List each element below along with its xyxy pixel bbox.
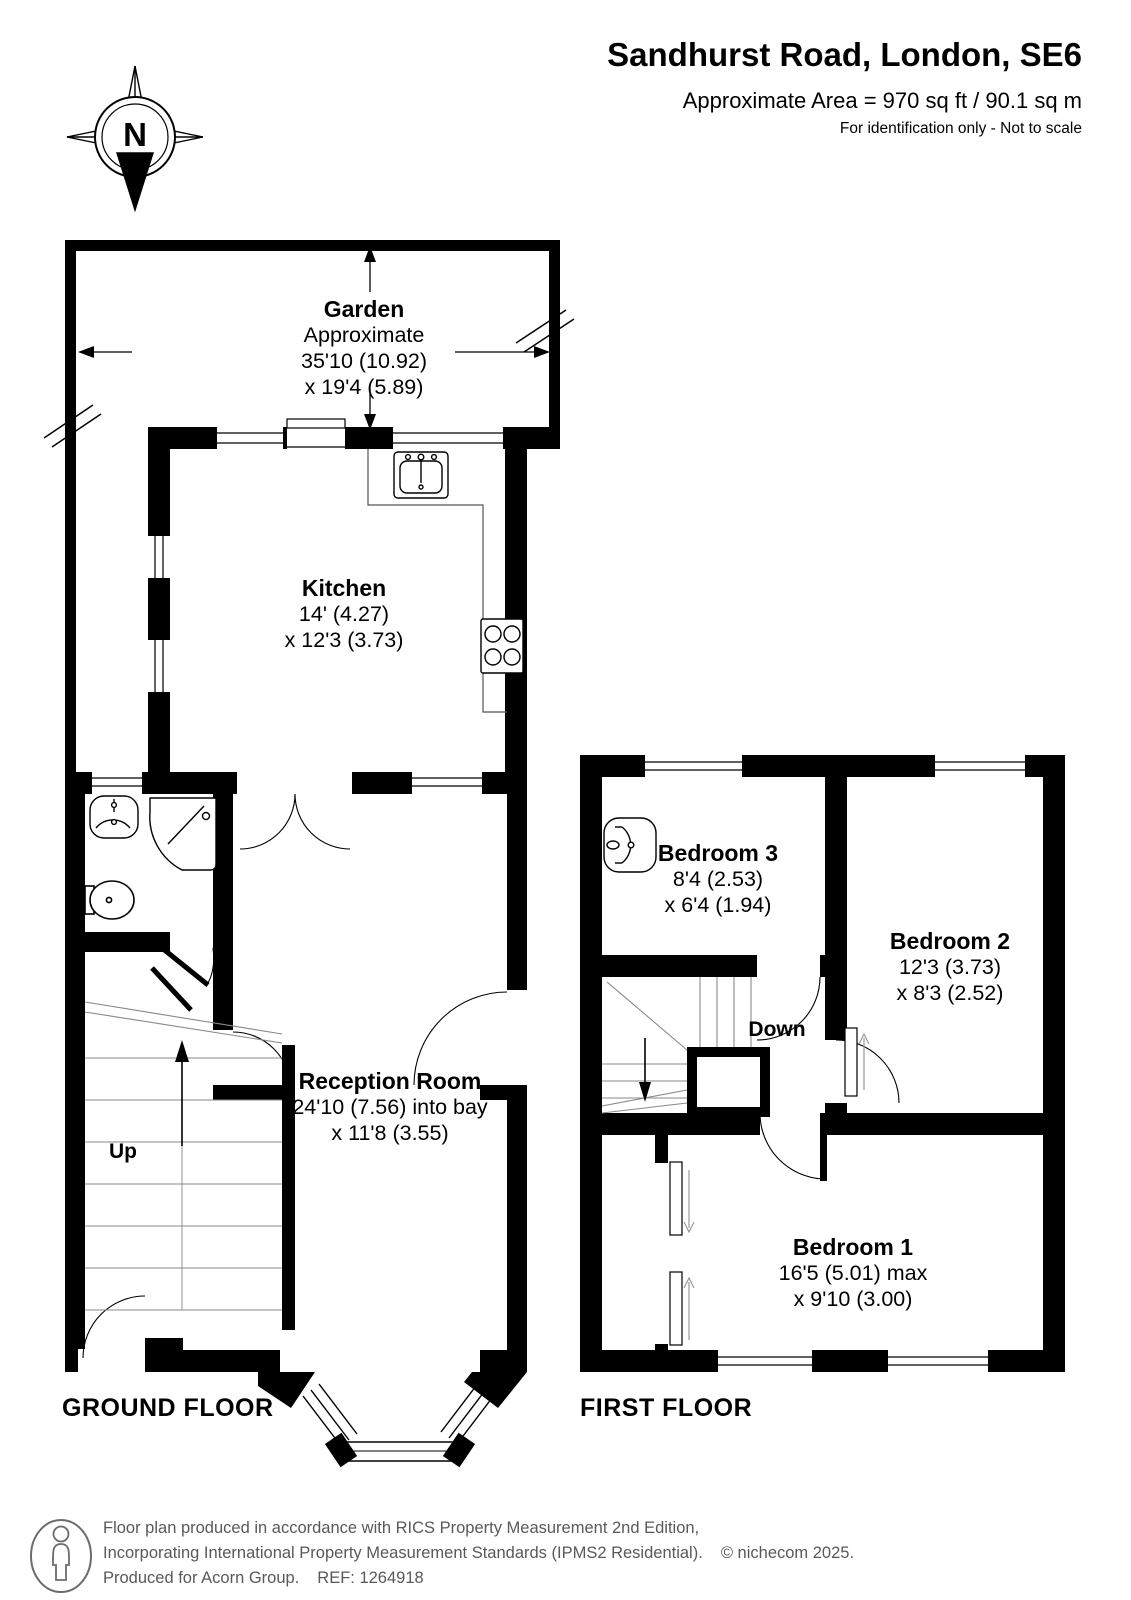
- page-title: Sandhurst Road, London, SE6: [607, 36, 1082, 74]
- shower-icon: [150, 798, 216, 870]
- toilet-icon: [85, 881, 134, 919]
- approximate-area: Approximate Area = 970 sq ft / 90.1 sq m: [683, 88, 1082, 114]
- stairs-up-label: Up: [88, 1140, 158, 1164]
- room-label-bedroom1: Bedroom 1 16'5 (5.01) max x 9'10 (3.00): [733, 1234, 973, 1312]
- stairs-down-label: Down: [737, 1018, 817, 1042]
- compass-letter: N: [114, 116, 156, 154]
- room-label-bedroom2: Bedroom 2 12'3 (3.73) x 8'3 (2.52): [840, 928, 1060, 1006]
- footer-line3: Produced for Acorn Group.REF: 1264918: [103, 1566, 854, 1591]
- stair-void: [692, 1052, 765, 1112]
- room-label-bedroom3: Bedroom 3 8'4 (2.53) x 6'4 (1.94): [608, 840, 828, 918]
- hall-door-leaves: [152, 948, 208, 1010]
- room-label-reception: Reception Room 24'10 (7.56) into bay x 1…: [268, 1068, 512, 1146]
- identification-note: For identification only - Not to scale: [840, 120, 1082, 138]
- person-icon: [31, 1520, 91, 1592]
- french-doors: [240, 794, 350, 849]
- first-floor-label: FIRST FLOOR: [580, 1394, 752, 1423]
- room-label-kitchen: Kitchen 14' (4.27) x 12'3 (3.73): [234, 575, 454, 653]
- up-arrow: [175, 1040, 189, 1146]
- down-arrow: [639, 1038, 651, 1102]
- room-label-garden: Garden Approximate 35'10 (10.92) x 19'4 …: [244, 296, 484, 400]
- bay-window: [258, 1372, 527, 1467]
- footer-line2: Incorporating International Property Mea…: [103, 1541, 854, 1566]
- bathroom-sink-icon: [90, 796, 138, 838]
- footer-disclaimer: Floor plan produced in accordance with R…: [103, 1516, 854, 1591]
- front-door-opening: [78, 1349, 145, 1373]
- ground-floor-label: GROUND FLOOR: [62, 1394, 274, 1423]
- hob-icon: [481, 619, 523, 673]
- floorplan-page: Sandhurst Road, London, SE6 Approximate …: [0, 0, 1131, 1600]
- footer-line1: Floor plan produced in accordance with R…: [103, 1516, 854, 1541]
- floor-plan-graphic: [0, 0, 1131, 1600]
- kitchen-sink-icon: [394, 452, 448, 498]
